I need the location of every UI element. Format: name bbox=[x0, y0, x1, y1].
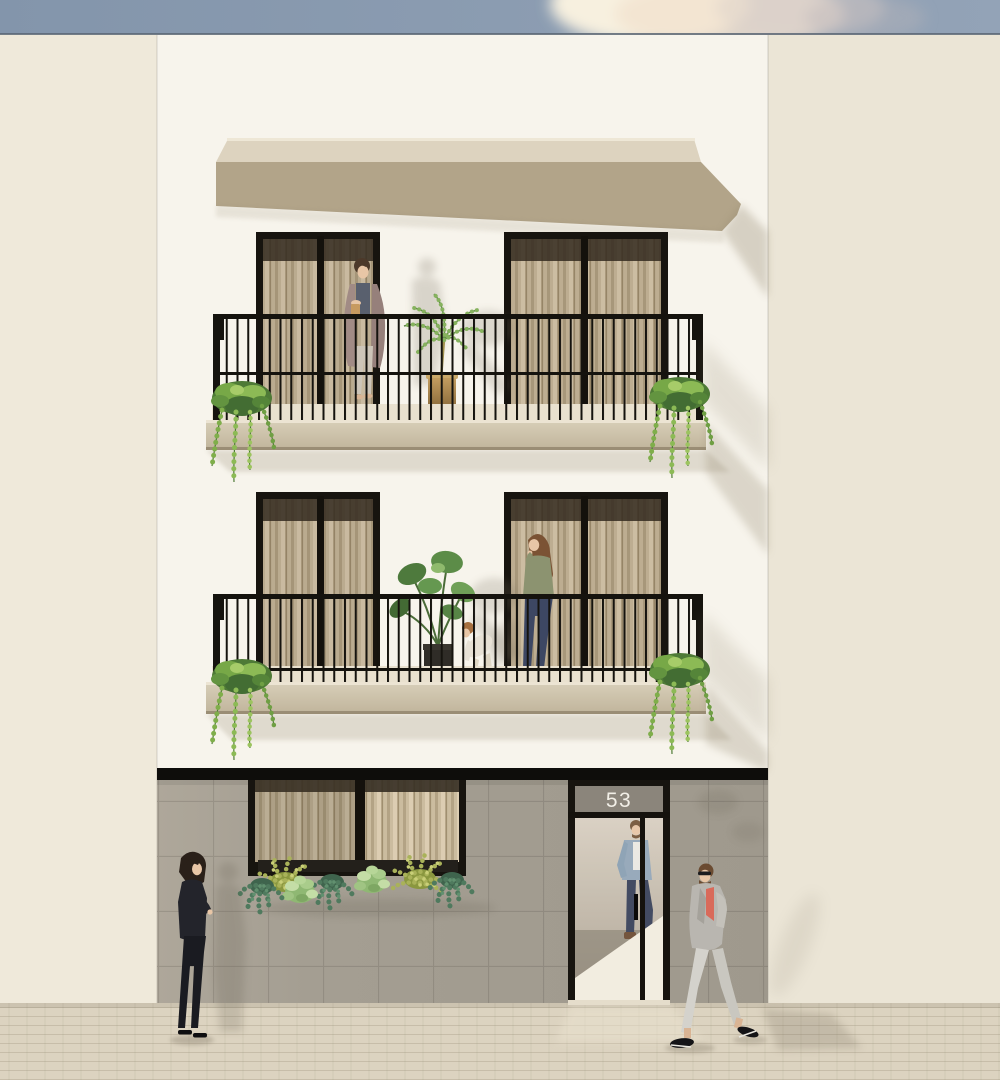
door-handle bbox=[634, 894, 638, 920]
door-number: 53 bbox=[606, 789, 632, 812]
neighbor-wall-left bbox=[0, 35, 157, 1005]
architectural-rendering: 53 bbox=[0, 0, 1000, 1080]
entrance-door: 53 bbox=[568, 780, 670, 1005]
door-glass bbox=[575, 818, 663, 1000]
railing-upper bbox=[213, 314, 703, 420]
storefront-band bbox=[157, 768, 768, 780]
railing-middle bbox=[213, 594, 703, 682]
neighbor-wall-right bbox=[768, 35, 1000, 1005]
window-planter bbox=[240, 853, 496, 917]
